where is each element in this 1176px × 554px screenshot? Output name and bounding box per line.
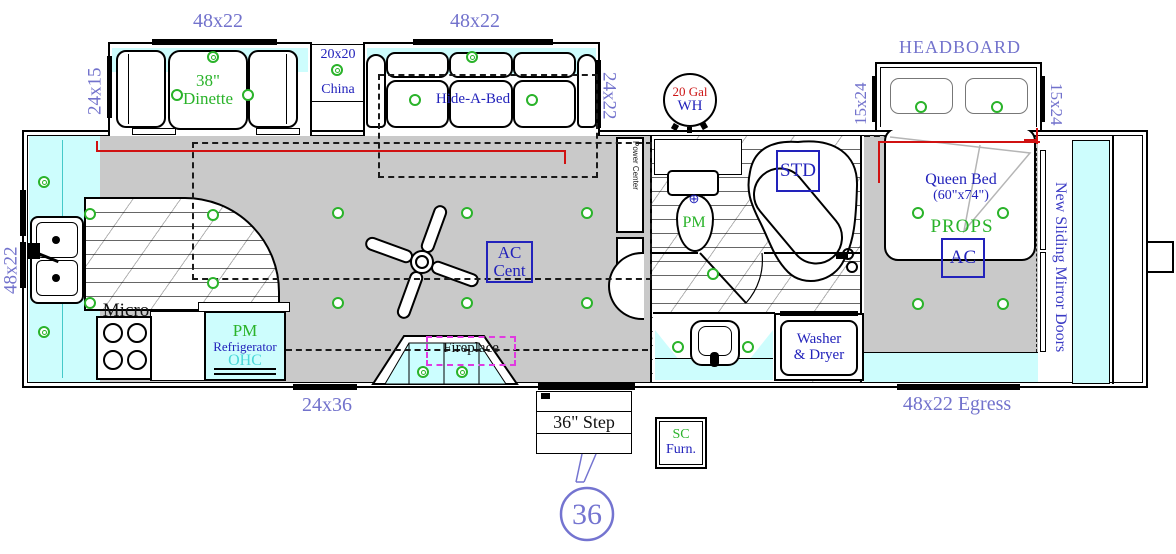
sofa-slide-depth-label: 24x22 <box>598 52 620 140</box>
fridge-label-pm: PM <box>233 322 258 340</box>
headboard-left-size: 15x24 <box>850 66 871 142</box>
burner-icon <box>103 350 123 370</box>
dinette-bench-left <box>116 50 166 128</box>
length-callout: 36 <box>542 452 634 554</box>
fridge-vent-line <box>214 373 276 375</box>
props-label: PROPS <box>920 216 1004 238</box>
toilet-label: PM <box>670 214 718 232</box>
fireplace-label: Fireplace <box>426 339 516 359</box>
washer-label-1: Washer <box>797 332 842 348</box>
microwave-label: Micro <box>95 301 157 321</box>
sc-furnace: SC Furn. <box>659 421 703 465</box>
fridge-label-refrigerator: Refrigerator <box>213 340 277 354</box>
front-cap-wall <box>1112 136 1114 384</box>
fridge-vent-line <box>214 368 276 370</box>
bedroom-front-counter <box>864 352 1038 382</box>
wh-size-label: 20 Gal <box>672 85 707 99</box>
kitchen-window-label: 48x22 <box>0 222 22 318</box>
sink-drain-top <box>52 236 60 244</box>
china-name-label: China <box>311 82 365 98</box>
vanity-faucet-icon <box>710 352 719 367</box>
burner-icon <box>127 350 147 370</box>
sink-drain-bottom <box>52 274 60 282</box>
sofa-slide-size-label: 48x22 <box>425 8 525 34</box>
egress-label: 48x22 Egress <box>872 392 1042 416</box>
window-bar <box>293 384 357 390</box>
dinette-window-bar <box>152 39 277 45</box>
burner-icon <box>127 323 147 343</box>
sc-label-1: SC <box>672 428 689 443</box>
washer-window-bar <box>780 311 858 316</box>
entry-door-bar <box>538 383 635 390</box>
bedroom-slide-seal-line <box>878 141 880 183</box>
bath-mid-wall-left <box>652 252 698 254</box>
kitchen-base-cabinet <box>150 311 206 381</box>
bedroom-slide-seal-line <box>1024 139 1038 141</box>
exterior-bump <box>1144 241 1174 273</box>
queen-bed-label: Queen Bed (60"x74") <box>904 168 1018 208</box>
dinette-side-window-bar <box>107 56 112 118</box>
floorplan-canvas: Micro PM Refrigerator OHC Power Center ⊕… <box>0 0 1176 554</box>
bath-mid-wall-right <box>764 252 862 254</box>
mirror-door-panel <box>1040 150 1046 250</box>
headboard-right-size: 15x24 <box>1046 66 1067 142</box>
dinette-slide-size-label: 48x22 <box>168 8 268 34</box>
sofa-window-bar <box>413 39 553 45</box>
bench-foot <box>132 128 176 135</box>
bench-foot <box>256 128 300 135</box>
burner-icon <box>103 323 123 343</box>
washer-dryer: Washer & Dryer <box>780 320 858 376</box>
bench-back-line <box>286 54 287 124</box>
sc-label-2: Furn. <box>666 443 696 458</box>
refrigerator: PM Refrigerator OHC <box>204 311 286 381</box>
ac-cent-2: Cent <box>493 262 525 280</box>
ac-cent-box: AC Cent <box>486 241 533 283</box>
bed-label-2: (60"x74") <box>933 189 989 204</box>
pillow <box>890 78 953 114</box>
headboard-window-bar-right <box>1040 76 1045 122</box>
headboard-window-bar-left <box>872 76 877 122</box>
entry-step-bottom <box>536 433 632 454</box>
dinette-slide-depth-label: 24x15 <box>84 48 106 134</box>
wardrobe-dash-line <box>1036 148 1037 352</box>
sofa-name-label: Hide-A-Bed <box>408 91 538 109</box>
washer-label-2: & Dryer <box>794 348 844 364</box>
ac-cent-1: AC <box>498 244 522 262</box>
slide-seal-line <box>96 141 98 152</box>
dinette-name: Dinette <box>183 90 233 108</box>
wh-label: WH <box>678 99 703 115</box>
bedroom-slide-seal-line <box>878 141 1040 143</box>
wardrobe-strip <box>1072 140 1110 384</box>
mirror-doors-label: New Sliding Mirror Doors <box>1048 150 1072 384</box>
living-window-label: 24x36 <box>282 393 372 417</box>
toilet-supply-icon: ⊕ <box>685 192 703 206</box>
dinette-size: 38" <box>196 72 220 90</box>
bedroom-ac-box: AC <box>941 238 985 278</box>
tub-label-box: STD <box>776 150 820 192</box>
pillow <box>965 78 1028 114</box>
step-latch <box>541 393 550 399</box>
bath-door-swing <box>696 250 768 320</box>
sofa-bed-travel-dash <box>378 74 598 178</box>
entry-step: 36" Step <box>536 411 632 434</box>
wh-foot <box>700 122 708 130</box>
bed-label-1: Queen Bed <box>925 172 997 189</box>
bedroom-slide-seal-line <box>1036 128 1038 144</box>
water-heater: 20 Gal WH <box>663 73 717 127</box>
length-badge: 36 <box>572 498 602 531</box>
egress-window-bar <box>897 384 1020 390</box>
dinette-table: 38" Dinette <box>168 50 248 130</box>
entry-step-top <box>536 391 632 412</box>
china-size-label: 20x20 <box>311 47 365 63</box>
wh-foot <box>687 127 692 133</box>
headboard-label: HEADBOARD <box>888 35 1032 59</box>
mirror-door-panel <box>1040 252 1046 352</box>
dinette-bench-right <box>248 50 298 128</box>
bench-back-line <box>128 54 129 124</box>
